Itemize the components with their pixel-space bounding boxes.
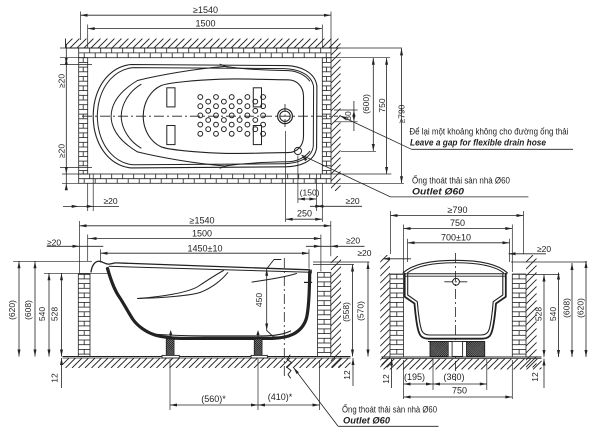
svg-text:450: 450: [254, 293, 264, 307]
svg-text:1500: 1500: [195, 18, 215, 28]
svg-text:(570): (570): [356, 301, 366, 321]
svg-text:(620): (620): [576, 298, 586, 318]
svg-text:(608): (608): [562, 298, 572, 318]
svg-text:Leave a gap for flexible drain: Leave a gap for flexible drain hose: [410, 137, 546, 147]
svg-text:540: 540: [548, 307, 558, 321]
svg-text:540: 540: [37, 307, 47, 321]
svg-text:(558): (558): [341, 302, 351, 322]
svg-text:750: 750: [452, 386, 467, 396]
svg-text:≥20: ≥20: [47, 237, 61, 247]
svg-text:(560)*: (560)*: [201, 394, 226, 404]
svg-text:750: 750: [450, 218, 465, 228]
svg-text:≥1540: ≥1540: [193, 5, 218, 15]
svg-text:12: 12: [381, 374, 391, 384]
svg-text:≥20: ≥20: [103, 196, 117, 206]
svg-text:528: 528: [534, 307, 544, 321]
svg-text:Ống thoát thải sàn nhà Ø60: Ống thoát thải sàn nhà Ø60: [412, 175, 510, 186]
svg-text:12: 12: [50, 373, 60, 383]
svg-text:≥20: ≥20: [357, 248, 371, 258]
svg-text:Outlet Ø60: Outlet Ø60: [412, 187, 464, 197]
svg-text:750: 750: [377, 98, 387, 112]
svg-text:Outlet Ø60: Outlet Ø60: [343, 416, 390, 426]
svg-text:250: 250: [297, 209, 312, 219]
svg-text:528: 528: [50, 307, 60, 321]
svg-text:Để lại một khoảng không cho đư: Để lại một khoảng không cho đường ống th…: [409, 127, 568, 137]
svg-text:1450±10: 1450±10: [188, 243, 223, 253]
svg-text:700±10: 700±10: [441, 233, 471, 243]
svg-text:12: 12: [530, 372, 540, 382]
svg-text:≥20: ≥20: [57, 74, 67, 88]
svg-text:(410)*: (410)*: [268, 392, 293, 402]
svg-text:1500: 1500: [192, 228, 212, 238]
svg-text:(360): (360): [443, 372, 464, 382]
svg-text:≥20: ≥20: [57, 144, 67, 158]
svg-text:≥20: ≥20: [537, 244, 551, 254]
svg-text:(608): (608): [23, 300, 33, 320]
svg-text:≥20: ≥20: [346, 196, 360, 206]
svg-text:≥20: ≥20: [346, 236, 360, 246]
svg-text:(195): (195): [404, 372, 425, 382]
svg-text:(600): (600): [361, 94, 371, 114]
svg-text:Ống thoát thải sàn nhà Ø60: Ống thoát thải sàn nhà Ø60: [342, 404, 437, 415]
svg-text:≥790: ≥790: [397, 104, 407, 123]
svg-text:(620): (620): [7, 300, 17, 320]
svg-text:≥1540: ≥1540: [190, 216, 215, 226]
svg-text:12: 12: [342, 370, 352, 380]
svg-text:≥790: ≥790: [448, 205, 468, 215]
